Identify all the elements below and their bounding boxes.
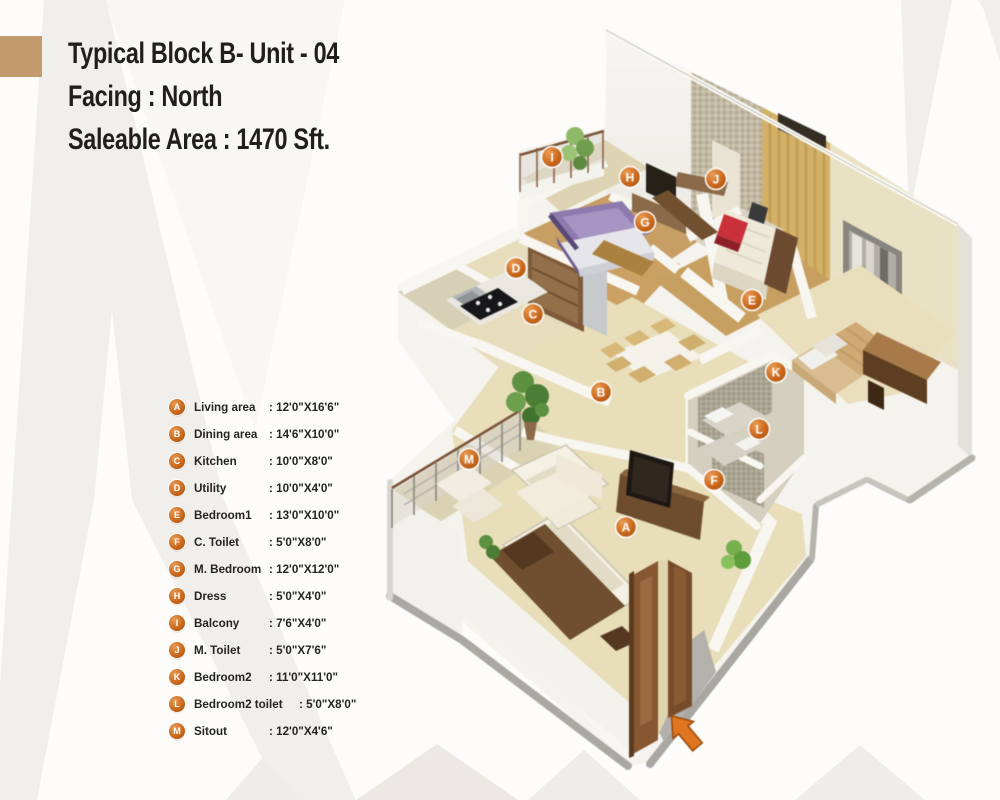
svg-text:K: K <box>772 366 781 380</box>
svg-text:E: E <box>748 294 756 308</box>
svg-text:C: C <box>529 308 538 322</box>
svg-text:F: F <box>710 474 717 488</box>
svg-text:H: H <box>626 171 635 185</box>
svg-text:M: M <box>464 453 474 467</box>
svg-text:G: G <box>640 216 649 230</box>
svg-text:D: D <box>512 262 521 276</box>
svg-text:A: A <box>622 521 631 535</box>
svg-text:L: L <box>755 423 762 437</box>
svg-text:I: I <box>550 151 553 165</box>
svg-text:J: J <box>713 173 720 187</box>
svg-text:B: B <box>597 386 606 400</box>
